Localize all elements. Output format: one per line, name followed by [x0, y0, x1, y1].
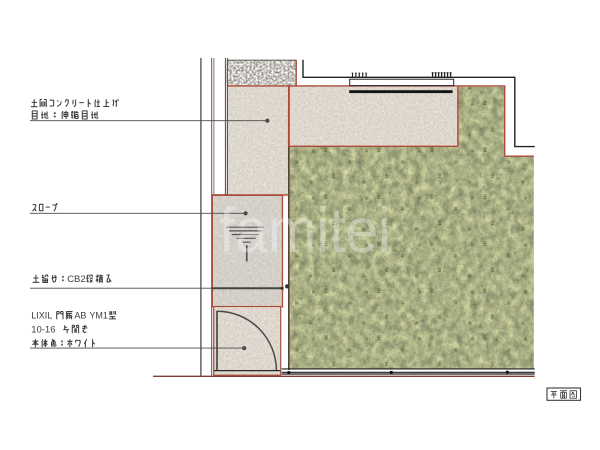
svg-text:LIXIL: LIXIL: [31, 310, 52, 320]
svg-text:CB2: CB2: [67, 274, 85, 285]
svg-text:10-16: 10-16: [31, 324, 55, 335]
svg-text:AB: AB: [74, 310, 86, 320]
svg-text:famitei: famitei: [219, 196, 391, 266]
svg-text:YM1: YM1: [89, 310, 108, 320]
